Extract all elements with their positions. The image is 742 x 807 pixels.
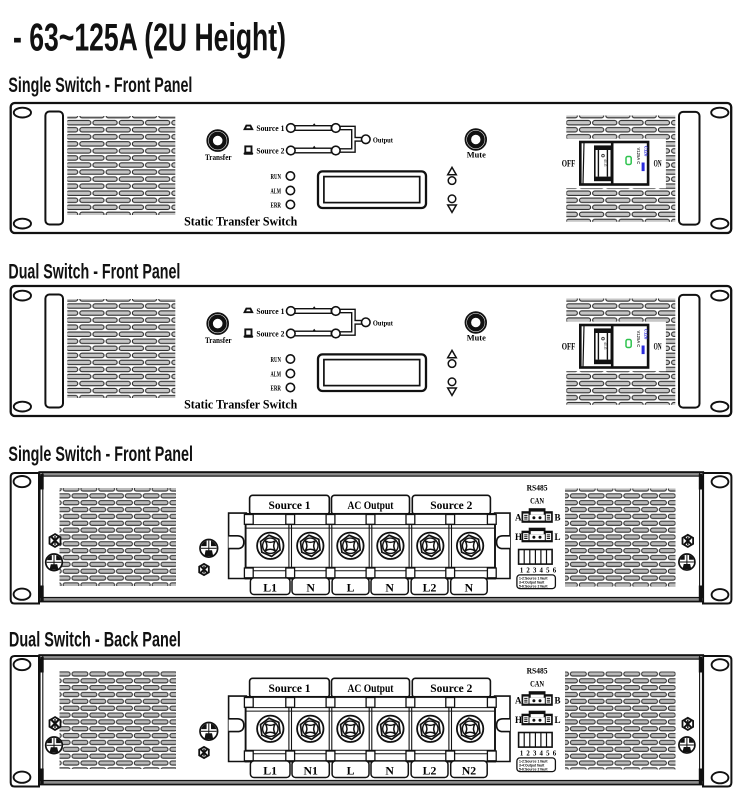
svg-text:N: N bbox=[465, 581, 474, 595]
svg-text:N: N bbox=[306, 581, 315, 595]
svg-text:OFF: OFF bbox=[562, 341, 576, 352]
svg-text:Static Transfer Switch: Static Transfer Switch bbox=[184, 214, 297, 228]
svg-text:CAN: CAN bbox=[530, 495, 544, 505]
svg-text:Mute: Mute bbox=[467, 151, 486, 160]
svg-text:Mute: Mute bbox=[467, 334, 486, 343]
svg-text:ON: ON bbox=[654, 158, 662, 169]
svg-text:A: A bbox=[515, 513, 522, 523]
svg-text:40-G: 40-G bbox=[603, 342, 607, 350]
svg-text:V125A C: V125A C bbox=[636, 148, 641, 165]
svg-text:OFF: OFF bbox=[562, 158, 576, 169]
svg-text:L: L bbox=[347, 581, 355, 595]
svg-text:C120: C120 bbox=[643, 146, 648, 157]
svg-text:L: L bbox=[555, 532, 561, 542]
svg-text:6: 6 bbox=[553, 751, 557, 758]
svg-text:5: 5 bbox=[546, 751, 550, 758]
svg-text:CAN: CAN bbox=[530, 678, 544, 688]
svg-text:H: H bbox=[515, 532, 522, 542]
svg-text:Source 1: Source 1 bbox=[256, 307, 284, 316]
svg-text:5-6:Source 2 fault: 5-6:Source 2 fault bbox=[519, 768, 548, 772]
svg-text:L: L bbox=[347, 764, 355, 778]
svg-text:B: B bbox=[555, 696, 561, 706]
svg-text:Source 1: Source 1 bbox=[256, 124, 284, 133]
svg-text:Static Transfer Switch: Static Transfer Switch bbox=[184, 397, 297, 411]
svg-text:- 63~125A (2U Height): - 63~125A (2U Height) bbox=[13, 17, 286, 60]
svg-text:Output: Output bbox=[373, 319, 393, 328]
svg-text:N: N bbox=[385, 581, 394, 595]
svg-text:Single Switch - Front Panel: Single Switch - Front Panel bbox=[8, 443, 193, 466]
svg-text:RS485: RS485 bbox=[527, 482, 549, 492]
svg-text:ON: ON bbox=[654, 341, 662, 352]
svg-text:N: N bbox=[385, 764, 394, 778]
svg-text:N1: N1 bbox=[303, 764, 318, 778]
svg-text:4: 4 bbox=[539, 568, 543, 575]
svg-text:Output: Output bbox=[373, 136, 393, 145]
svg-text:ALM: ALM bbox=[271, 370, 282, 378]
svg-text:A: A bbox=[515, 696, 522, 706]
svg-text:1: 1 bbox=[520, 751, 524, 758]
svg-text:3: 3 bbox=[533, 751, 537, 758]
svg-text:RUN: RUN bbox=[271, 173, 282, 181]
svg-text:RUN: RUN bbox=[271, 356, 282, 364]
svg-text:6: 6 bbox=[553, 568, 557, 575]
svg-text:Source 2: Source 2 bbox=[256, 147, 284, 156]
svg-text:L: L bbox=[555, 715, 561, 725]
svg-text:3: 3 bbox=[533, 568, 537, 575]
svg-text:H: H bbox=[515, 715, 522, 725]
svg-text:ERR: ERR bbox=[271, 201, 282, 209]
svg-text:C120: C120 bbox=[643, 329, 648, 340]
svg-text:L1: L1 bbox=[263, 581, 277, 595]
svg-text:AC Output: AC Output bbox=[348, 500, 394, 512]
svg-text:RS485: RS485 bbox=[527, 665, 549, 675]
svg-text:AC Output: AC Output bbox=[348, 683, 394, 695]
svg-text:Source 1: Source 1 bbox=[269, 683, 311, 695]
svg-text:2: 2 bbox=[526, 568, 530, 575]
svg-text:Source 1: Source 1 bbox=[269, 500, 311, 512]
svg-text:2: 2 bbox=[526, 751, 530, 758]
svg-text:B: B bbox=[555, 513, 561, 523]
svg-text:ERR: ERR bbox=[271, 384, 282, 392]
svg-text:Transfer: Transfer bbox=[205, 336, 232, 345]
svg-text:4: 4 bbox=[539, 751, 543, 758]
svg-text:Source 2: Source 2 bbox=[430, 683, 472, 695]
svg-text:Single Switch - Front Panel: Single Switch - Front Panel bbox=[8, 74, 192, 97]
svg-text:Transfer: Transfer bbox=[205, 153, 232, 162]
svg-text:V125A C: V125A C bbox=[636, 331, 641, 348]
svg-text:Source 2: Source 2 bbox=[256, 330, 284, 339]
svg-text:5: 5 bbox=[546, 568, 550, 575]
svg-text:5-6:Source 2 fault: 5-6:Source 2 fault bbox=[519, 585, 548, 589]
svg-text:Dual Switch - Front Panel: Dual Switch - Front Panel bbox=[8, 261, 180, 284]
svg-text:40-G: 40-G bbox=[603, 159, 607, 167]
svg-text:L2: L2 bbox=[423, 764, 437, 778]
svg-text:L1: L1 bbox=[263, 764, 277, 778]
svg-text:N2: N2 bbox=[462, 764, 477, 778]
svg-text:Source 2: Source 2 bbox=[430, 500, 472, 512]
svg-text:L2: L2 bbox=[423, 581, 437, 595]
svg-text:Dual Switch - Back Panel: Dual Switch - Back Panel bbox=[9, 628, 181, 651]
svg-text:ALM: ALM bbox=[271, 187, 282, 195]
svg-text:1: 1 bbox=[520, 568, 524, 575]
